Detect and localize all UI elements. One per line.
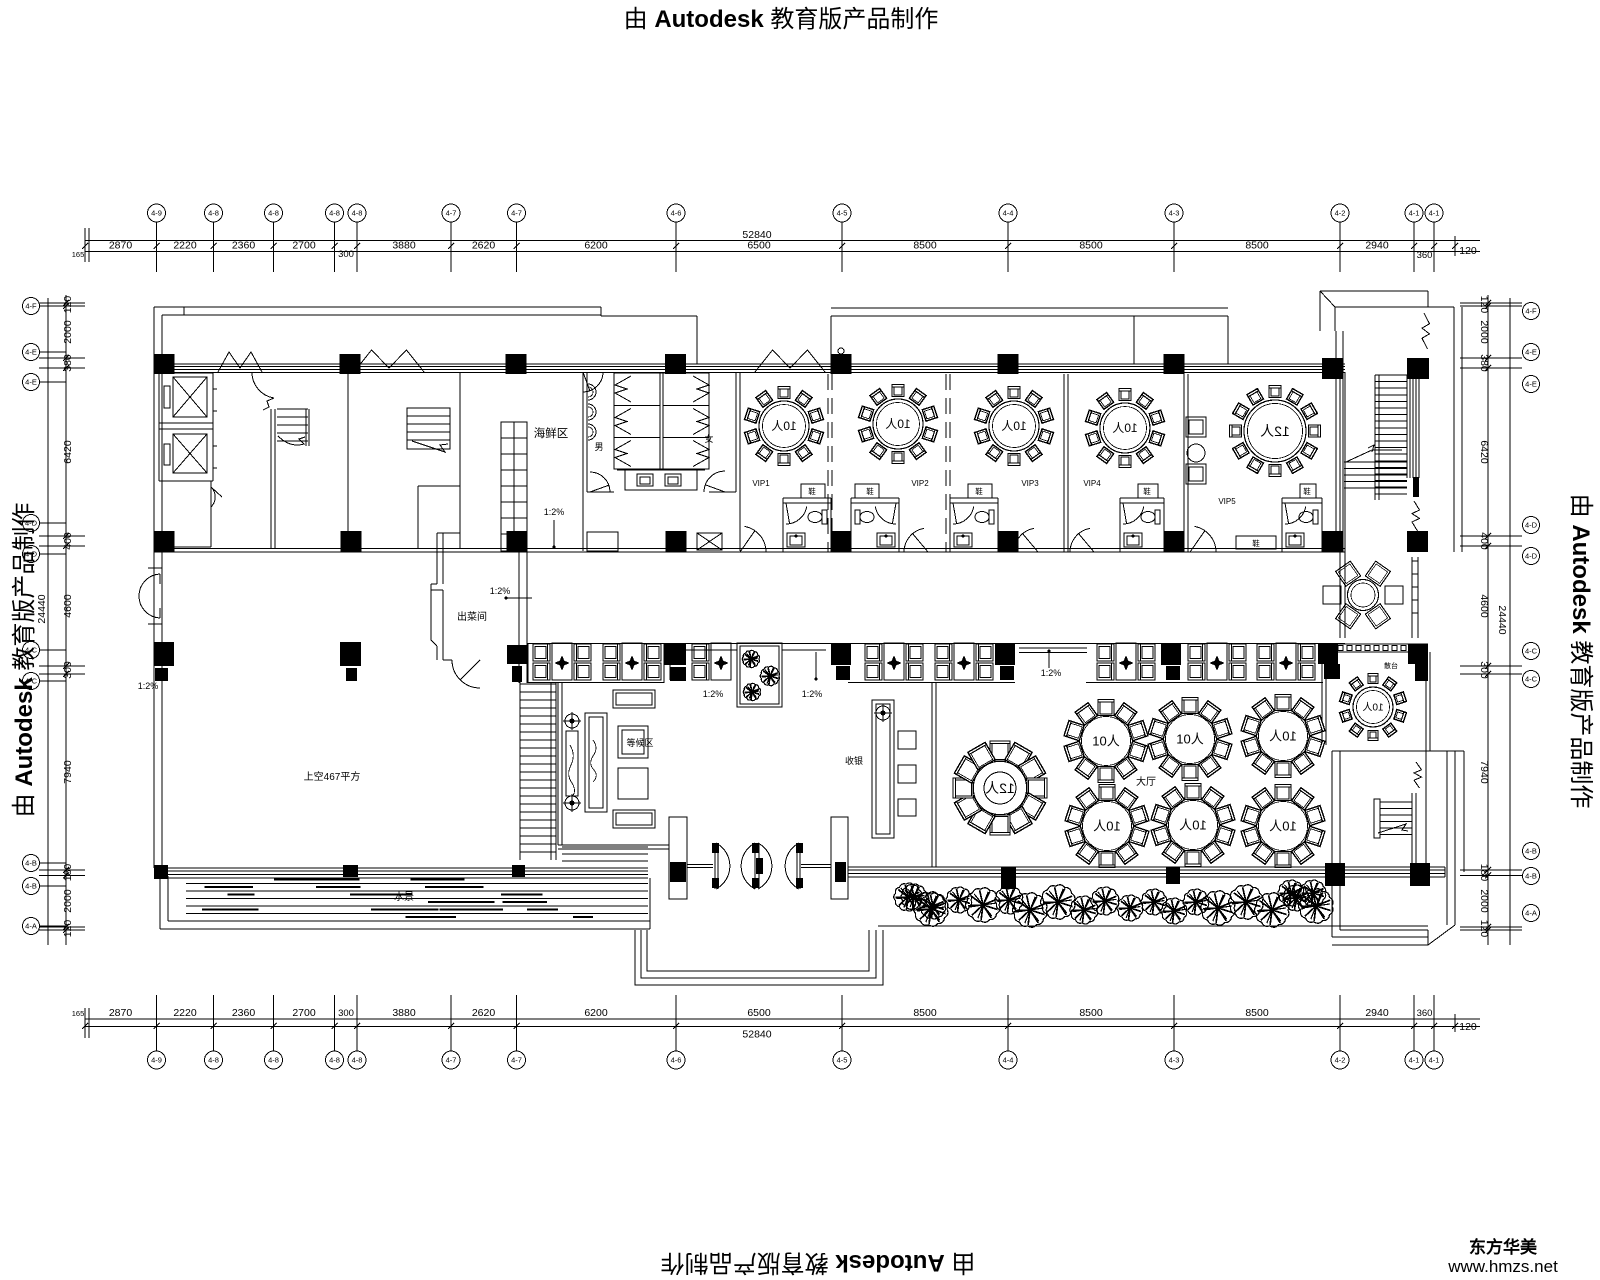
svg-text:2700: 2700 bbox=[292, 240, 316, 252]
svg-text:8500: 8500 bbox=[913, 240, 937, 252]
svg-text:8500: 8500 bbox=[913, 1007, 937, 1019]
svg-text:4-D: 4-D bbox=[25, 519, 38, 528]
svg-text:2000: 2000 bbox=[62, 889, 74, 913]
svg-text:4-4: 4-4 bbox=[1003, 209, 1014, 218]
svg-text:52840: 52840 bbox=[742, 229, 771, 241]
svg-text:4-7: 4-7 bbox=[446, 209, 457, 218]
svg-text:3880: 3880 bbox=[392, 240, 416, 252]
svg-text:1:2%: 1:2% bbox=[490, 586, 511, 596]
svg-text:4-F: 4-F bbox=[25, 302, 37, 311]
svg-text:散台: 散台 bbox=[1384, 661, 1398, 670]
svg-text:120: 120 bbox=[1478, 920, 1490, 938]
svg-text:4-8: 4-8 bbox=[208, 209, 219, 218]
svg-text:12人: 12人 bbox=[985, 780, 1015, 796]
svg-text:2620: 2620 bbox=[472, 240, 496, 252]
svg-text:4-7: 4-7 bbox=[446, 1056, 457, 1065]
svg-text:4-D: 4-D bbox=[1525, 552, 1538, 561]
svg-text:4-5: 4-5 bbox=[837, 209, 848, 218]
svg-text:8500: 8500 bbox=[1079, 1007, 1103, 1019]
svg-text:4-3: 4-3 bbox=[1169, 1056, 1180, 1065]
svg-text:8500: 8500 bbox=[1245, 1007, 1269, 1019]
svg-text:4-D: 4-D bbox=[25, 550, 38, 559]
svg-text:4-8: 4-8 bbox=[352, 1056, 363, 1065]
svg-text:6500: 6500 bbox=[747, 1007, 771, 1019]
svg-text:VIP5: VIP5 bbox=[1218, 497, 1236, 506]
svg-text:4-8: 4-8 bbox=[268, 1056, 279, 1065]
svg-text:1:2%: 1:2% bbox=[802, 689, 823, 699]
svg-text:380: 380 bbox=[62, 354, 74, 372]
svg-text:1:2%: 1:2% bbox=[703, 689, 724, 699]
svg-text:收银: 收银 bbox=[845, 755, 863, 766]
svg-text:10人: 10人 bbox=[1269, 729, 1296, 744]
svg-text:4-B: 4-B bbox=[1525, 847, 1537, 856]
svg-text:10人: 10人 bbox=[771, 419, 796, 433]
svg-text:4-D: 4-D bbox=[1525, 521, 1538, 530]
svg-text:165: 165 bbox=[72, 250, 85, 259]
svg-text:VIP1: VIP1 bbox=[752, 479, 770, 488]
svg-text:10人: 10人 bbox=[1362, 702, 1383, 714]
svg-text:4-A: 4-A bbox=[1525, 909, 1537, 918]
svg-text:4-5: 4-5 bbox=[837, 1056, 848, 1065]
svg-text:4-F: 4-F bbox=[1525, 307, 1537, 316]
svg-text:10人: 10人 bbox=[1176, 732, 1203, 747]
svg-text:4-9: 4-9 bbox=[151, 1056, 162, 1065]
svg-text:4-6: 4-6 bbox=[671, 1056, 682, 1065]
svg-text:4-8: 4-8 bbox=[208, 1056, 219, 1065]
svg-text:10人: 10人 bbox=[885, 417, 910, 431]
svg-text:VIP4: VIP4 bbox=[1083, 479, 1101, 488]
svg-text:360: 360 bbox=[1417, 1008, 1433, 1019]
svg-text:4-B: 4-B bbox=[25, 882, 37, 891]
svg-text:大厅: 大厅 bbox=[1136, 775, 1156, 788]
svg-text:10人: 10人 bbox=[1093, 819, 1120, 834]
svg-text:4-A: 4-A bbox=[25, 922, 37, 931]
svg-text:2700: 2700 bbox=[292, 1007, 316, 1019]
svg-text:2940: 2940 bbox=[1365, 1007, 1389, 1019]
svg-text:东方华美: 东方华美 bbox=[1469, 1237, 1538, 1257]
svg-text:10人: 10人 bbox=[1112, 421, 1137, 435]
svg-text:10人: 10人 bbox=[1092, 734, 1119, 749]
svg-text:2220: 2220 bbox=[173, 240, 197, 252]
svg-text:400: 400 bbox=[1478, 532, 1490, 550]
svg-text:300: 300 bbox=[338, 249, 354, 260]
svg-text:4-6: 4-6 bbox=[671, 209, 682, 218]
svg-text:鞋: 鞋 bbox=[1252, 538, 1260, 548]
svg-text:300: 300 bbox=[338, 1008, 354, 1019]
svg-text:4-8: 4-8 bbox=[329, 1056, 340, 1065]
svg-text:出菜间: 出菜间 bbox=[457, 610, 487, 623]
svg-text:2000: 2000 bbox=[1478, 889, 1490, 913]
svg-text:2870: 2870 bbox=[109, 240, 133, 252]
svg-text:等候区: 等候区 bbox=[626, 737, 653, 748]
svg-text:24440: 24440 bbox=[1496, 605, 1508, 634]
svg-text:300: 300 bbox=[1478, 661, 1490, 679]
svg-text:6200: 6200 bbox=[584, 1007, 608, 1019]
svg-text:4-C: 4-C bbox=[1525, 675, 1538, 684]
svg-text:4-7: 4-7 bbox=[511, 1056, 522, 1065]
svg-text:海鲜区: 海鲜区 bbox=[534, 426, 569, 440]
svg-text:7940: 7940 bbox=[1478, 760, 1490, 784]
svg-text:4-7: 4-7 bbox=[511, 209, 522, 218]
svg-text:2360: 2360 bbox=[232, 240, 256, 252]
svg-text:4-E: 4-E bbox=[25, 378, 37, 387]
svg-text:2000: 2000 bbox=[62, 320, 74, 344]
svg-text:360: 360 bbox=[1417, 250, 1433, 261]
svg-text:400: 400 bbox=[62, 532, 74, 550]
svg-text:4600: 4600 bbox=[1478, 594, 1490, 618]
svg-text:女: 女 bbox=[704, 433, 713, 444]
svg-text:3880: 3880 bbox=[392, 1007, 416, 1019]
svg-text:6200: 6200 bbox=[584, 240, 608, 252]
svg-text:10人: 10人 bbox=[1179, 818, 1206, 833]
svg-text:4-B: 4-B bbox=[1525, 872, 1537, 881]
svg-text:由 Autodesk 教育版产品制作: 由 Autodesk 教育版产品制作 bbox=[624, 6, 939, 33]
svg-text:10人: 10人 bbox=[1001, 419, 1026, 433]
svg-text:4-9: 4-9 bbox=[151, 209, 162, 218]
svg-text:4-C: 4-C bbox=[25, 646, 38, 655]
svg-text:24440: 24440 bbox=[36, 594, 48, 623]
svg-text:120: 120 bbox=[62, 296, 74, 314]
svg-text:由 Autodesk 教育版产品制作: 由 Autodesk 教育版产品制作 bbox=[661, 1249, 976, 1276]
svg-text:120: 120 bbox=[62, 920, 74, 938]
svg-text:2220: 2220 bbox=[173, 1007, 197, 1019]
svg-text:12人: 12人 bbox=[1260, 423, 1290, 439]
svg-text:4-2: 4-2 bbox=[1335, 1056, 1346, 1065]
svg-text:180: 180 bbox=[1478, 864, 1490, 882]
svg-text:水景: 水景 bbox=[394, 891, 414, 903]
svg-text:4-1: 4-1 bbox=[1409, 209, 1420, 218]
svg-text:鞋: 鞋 bbox=[975, 486, 983, 496]
svg-text:380: 380 bbox=[1478, 354, 1490, 372]
svg-text:4-C: 4-C bbox=[25, 677, 38, 686]
svg-text:1:2%: 1:2% bbox=[138, 681, 159, 691]
svg-text:300: 300 bbox=[62, 661, 74, 679]
svg-text:鞋: 鞋 bbox=[808, 486, 816, 496]
svg-text:2940: 2940 bbox=[1365, 240, 1389, 252]
svg-text:VIP2: VIP2 bbox=[911, 479, 929, 488]
svg-text:4-1: 4-1 bbox=[1429, 209, 1440, 218]
svg-text:120: 120 bbox=[1459, 1021, 1477, 1033]
svg-text:4-2: 4-2 bbox=[1335, 209, 1346, 218]
svg-text:8500: 8500 bbox=[1245, 240, 1269, 252]
svg-text:2000: 2000 bbox=[1478, 320, 1490, 344]
svg-text:120: 120 bbox=[1459, 245, 1477, 257]
svg-text:4600: 4600 bbox=[62, 594, 74, 618]
svg-text:180: 180 bbox=[62, 864, 74, 882]
svg-text:165: 165 bbox=[72, 1009, 85, 1018]
svg-text:4-C: 4-C bbox=[1525, 647, 1538, 656]
svg-text:10人: 10人 bbox=[1269, 819, 1296, 834]
svg-text:4-E: 4-E bbox=[1525, 348, 1537, 357]
svg-text:2360: 2360 bbox=[232, 1007, 256, 1019]
svg-text:1:2%: 1:2% bbox=[1041, 668, 1062, 678]
svg-text:52840: 52840 bbox=[742, 1029, 771, 1041]
svg-text:VIP3: VIP3 bbox=[1021, 479, 1039, 488]
svg-text:4-8: 4-8 bbox=[268, 209, 279, 218]
svg-text:1:2%: 1:2% bbox=[544, 507, 565, 517]
svg-text:www.hmzs.net: www.hmzs.net bbox=[1447, 1257, 1558, 1276]
svg-text:120: 120 bbox=[1478, 296, 1490, 314]
svg-text:鞋: 鞋 bbox=[1303, 486, 1311, 496]
svg-text:6500: 6500 bbox=[747, 240, 771, 252]
svg-text:鞋: 鞋 bbox=[866, 486, 874, 496]
svg-text:4-1: 4-1 bbox=[1409, 1056, 1420, 1065]
svg-text:7940: 7940 bbox=[62, 760, 74, 784]
svg-text:4-1: 4-1 bbox=[1429, 1056, 1440, 1065]
svg-text:4-E: 4-E bbox=[1525, 380, 1537, 389]
svg-text:由 Autodesk 教育版产品制作: 由 Autodesk 教育版产品制作 bbox=[1567, 494, 1594, 809]
svg-text:4-B: 4-B bbox=[25, 859, 37, 868]
svg-text:8500: 8500 bbox=[1079, 240, 1103, 252]
svg-text:2620: 2620 bbox=[472, 1007, 496, 1019]
svg-text:6420: 6420 bbox=[62, 440, 74, 464]
svg-text:4-4: 4-4 bbox=[1003, 1056, 1014, 1065]
svg-text:2870: 2870 bbox=[109, 1007, 133, 1019]
svg-text:鞋: 鞋 bbox=[1143, 486, 1151, 496]
svg-text:4-8: 4-8 bbox=[352, 209, 363, 218]
svg-text:6420: 6420 bbox=[1478, 440, 1490, 464]
svg-text:4-8: 4-8 bbox=[329, 209, 340, 218]
svg-text:男: 男 bbox=[594, 442, 603, 452]
svg-text:上空467平方: 上空467平方 bbox=[304, 770, 361, 783]
svg-text:4-E: 4-E bbox=[25, 348, 37, 357]
svg-text:4-3: 4-3 bbox=[1169, 209, 1180, 218]
